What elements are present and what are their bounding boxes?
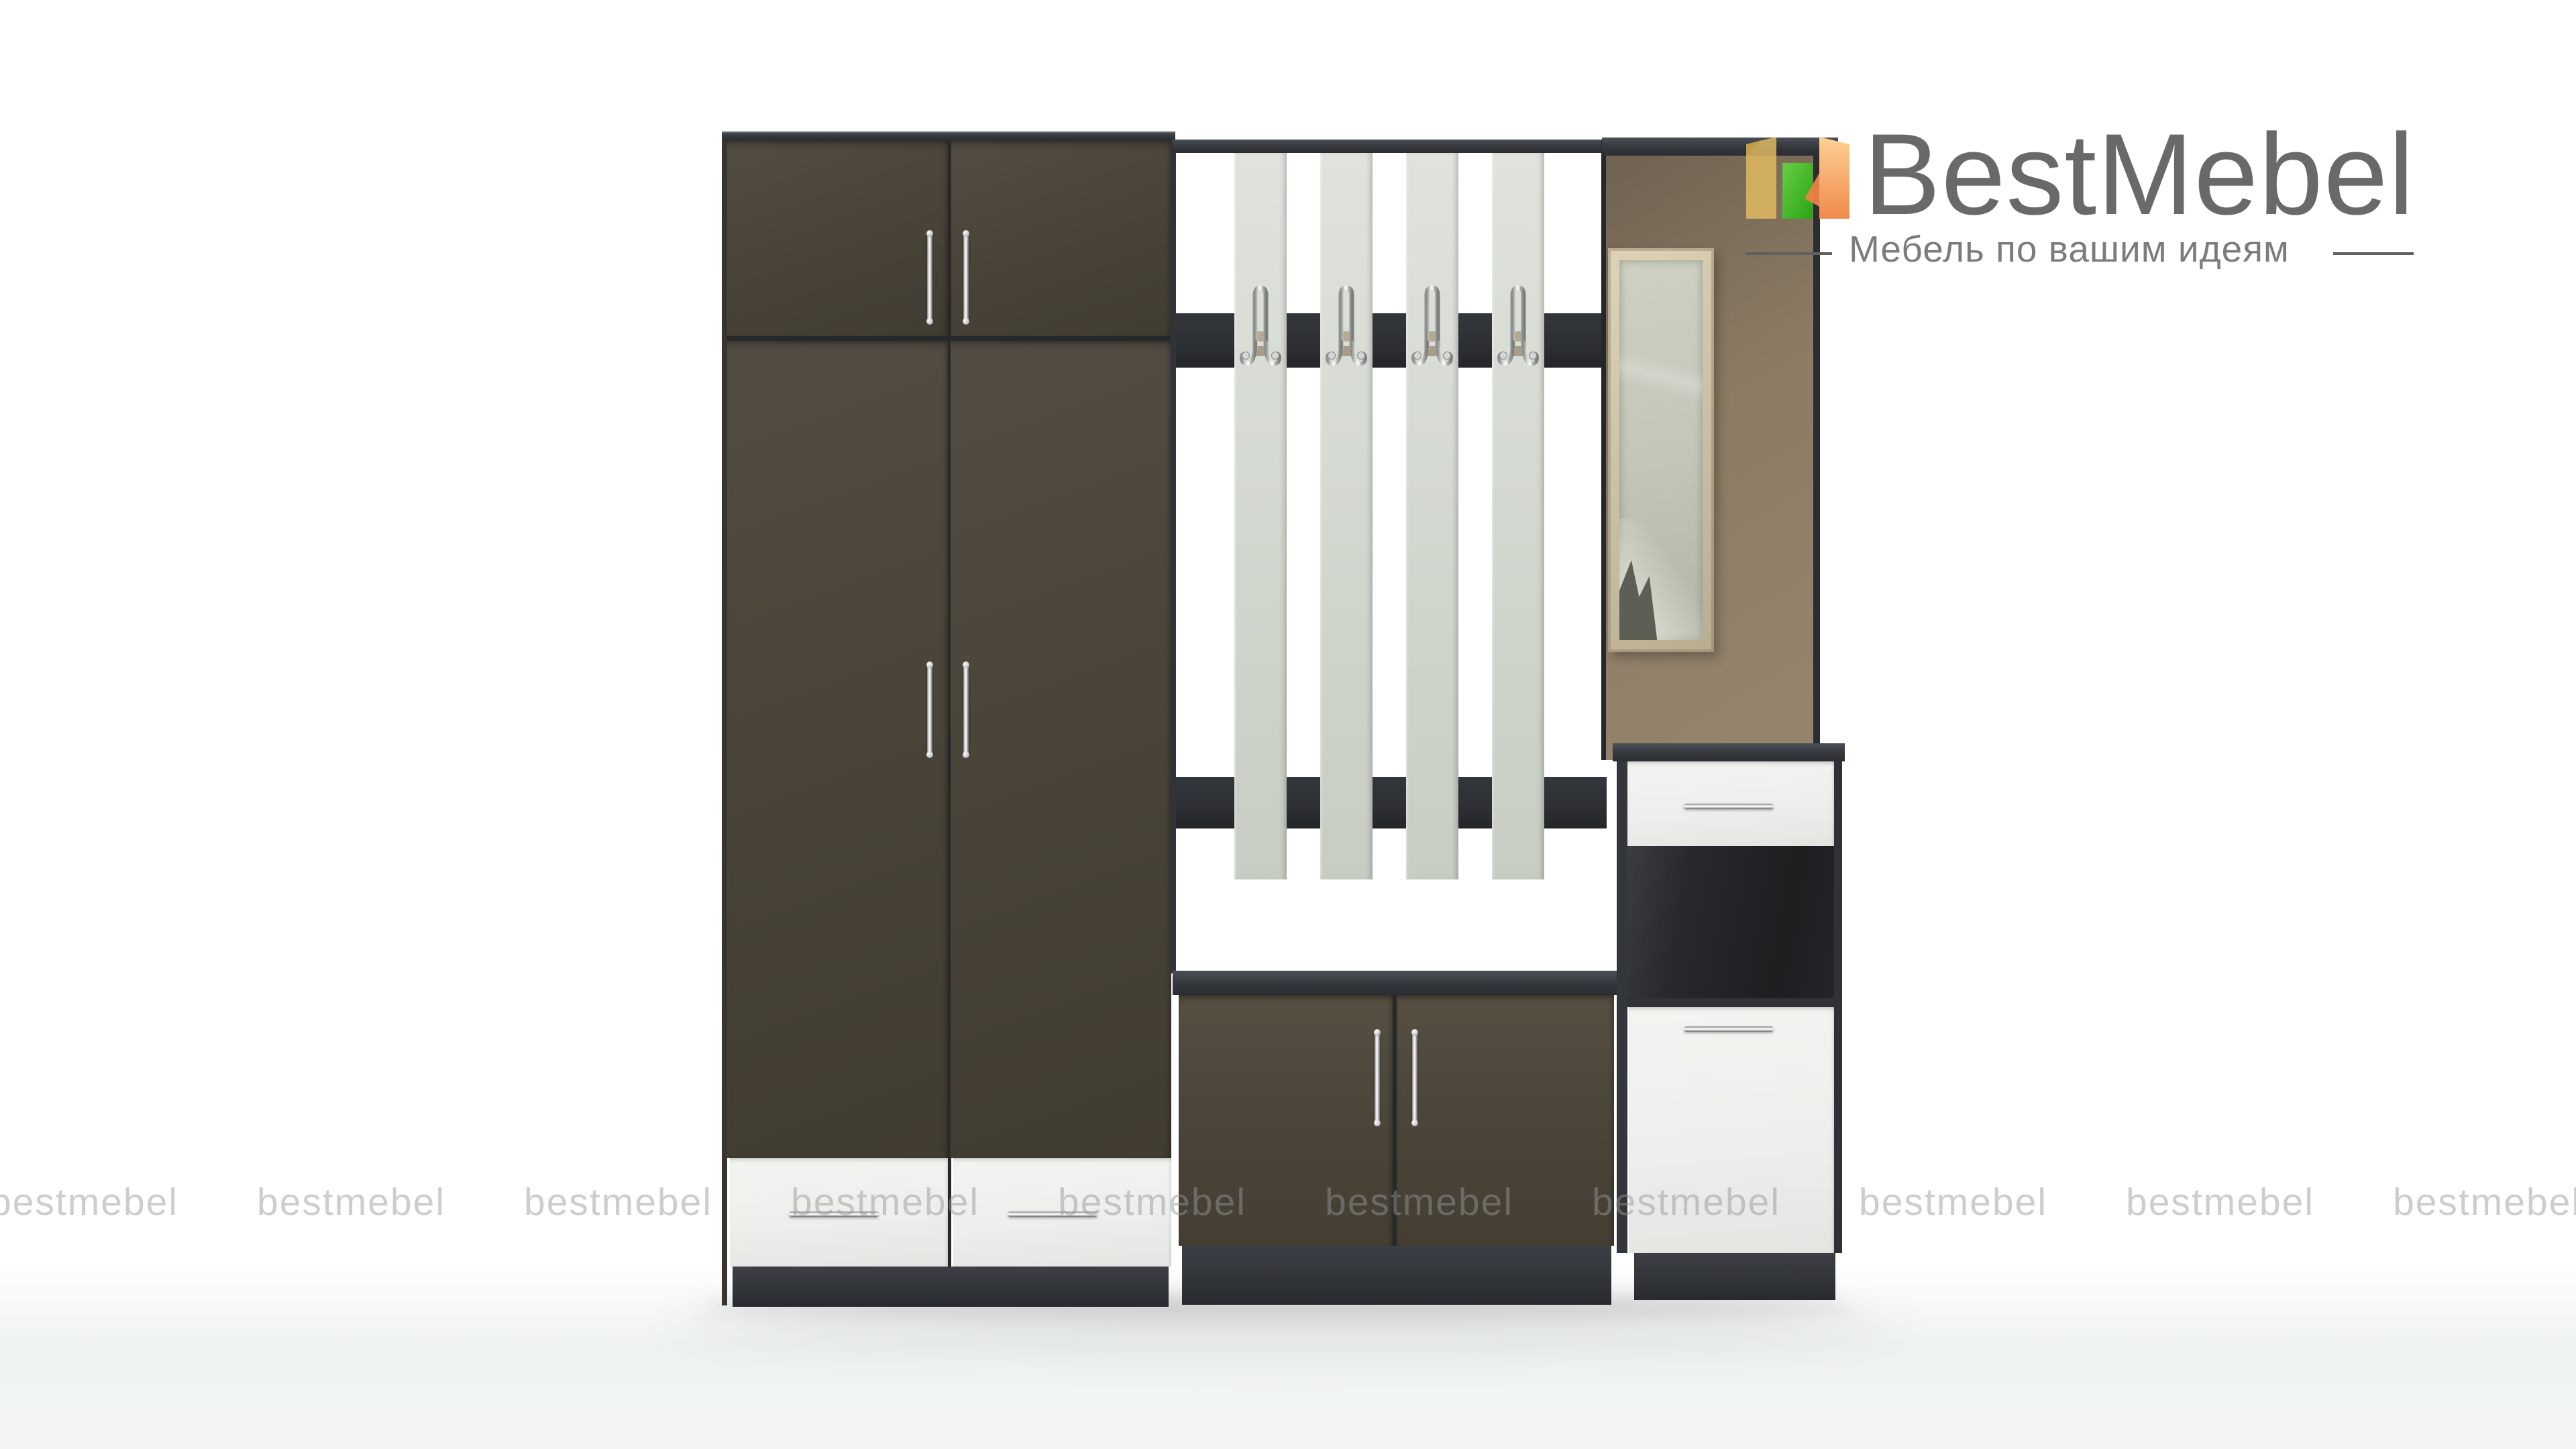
brand-logo: BestMebel Мебель по вашим идеям — [0, 0, 2576, 1449]
tagline-dash-right — [2333, 252, 2414, 255]
product-image-hallway-set: BestMebel Мебель по вашим идеям bestmebe… — [0, 0, 2576, 1449]
brand-name: BestMebel — [1864, 117, 2415, 231]
brand-tagline: Мебель по вашим идеям — [1849, 231, 2290, 268]
brand-logo-icon — [1741, 133, 1856, 221]
tagline-dash-left — [1746, 252, 1832, 255]
